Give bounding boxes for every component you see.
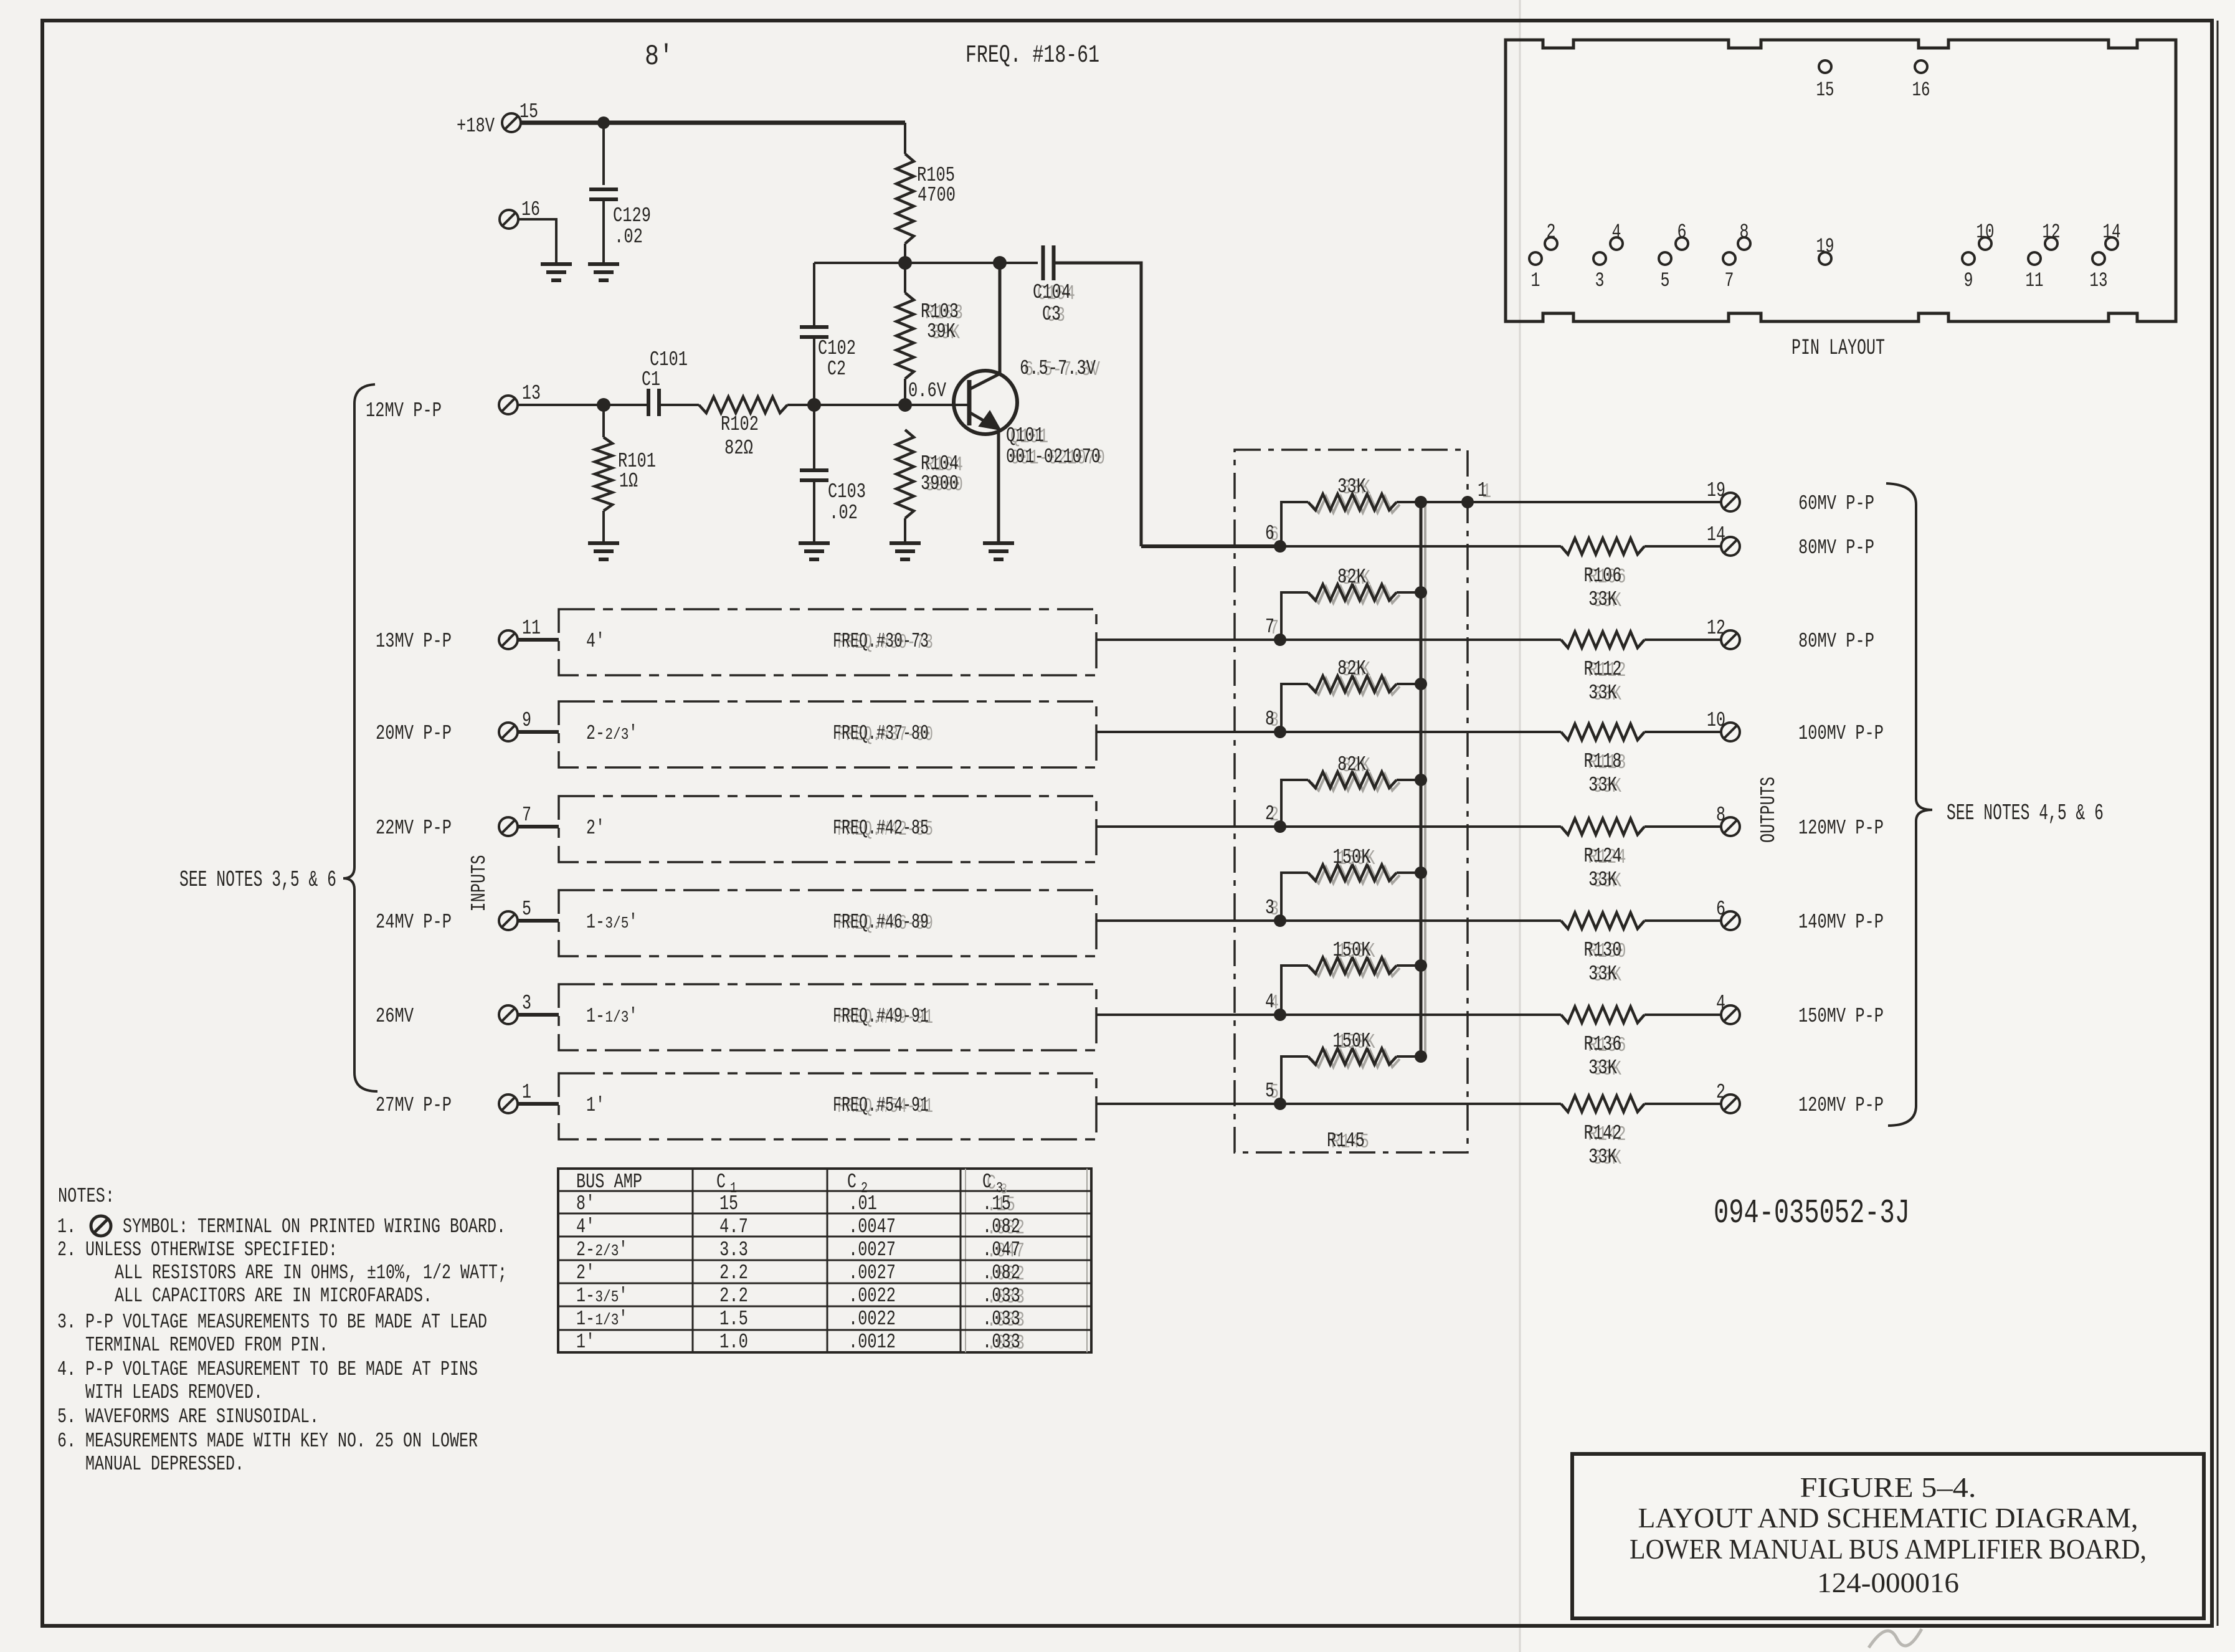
svg-text:PIN LAYOUT: PIN LAYOUT: [1791, 336, 1885, 361]
svg-text:FREQ. #18-61: FREQ. #18-61: [966, 42, 1099, 70]
svg-text:.033: .033: [982, 1331, 1020, 1354]
svg-text:1: 1: [1531, 269, 1540, 292]
svg-text:OUTPUTS: OUTPUTS: [1757, 777, 1780, 843]
svg-text:33K: 33K: [1588, 962, 1617, 985]
svg-text:1-: 1-: [586, 911, 605, 934]
svg-text:11: 11: [522, 617, 541, 640]
svg-text:R102: R102: [721, 413, 759, 436]
svg-text:33K: 33K: [1588, 868, 1617, 891]
svg-text:19: 19: [1707, 479, 1725, 502]
svg-text:4: 4: [1716, 992, 1725, 1015]
svg-text:1: 1: [1478, 479, 1487, 502]
svg-text:16: 16: [1912, 78, 1930, 102]
svg-text:FREQ.#46-89: FREQ.#46-89: [833, 911, 929, 934]
svg-text:24MV P-P: 24MV P-P: [376, 911, 452, 934]
svg-text:.0022: .0022: [848, 1308, 896, 1331]
svg-text:FREQ.#42-85: FREQ.#42-85: [833, 817, 929, 840]
svg-text:WAVEFORMS ARE SINUSOIDAL.: WAVEFORMS ARE SINUSOIDAL.: [85, 1405, 319, 1428]
svg-text:FREQ.#54-91: FREQ.#54-91: [833, 1094, 929, 1117]
svg-text:R112: R112: [1584, 658, 1622, 681]
svg-text:+18V: +18V: [457, 115, 495, 138]
svg-text:5.: 5.: [57, 1405, 76, 1428]
svg-text:1.: 1.: [57, 1215, 76, 1238]
svg-text:FREQ.#37-80: FREQ.#37-80: [833, 722, 929, 745]
svg-text:2.2: 2.2: [719, 1261, 748, 1284]
svg-text:C: C: [982, 1170, 992, 1194]
svg-text:2': 2': [576, 1261, 595, 1284]
svg-text:120MV P-P: 120MV P-P: [1798, 1094, 1884, 1117]
svg-text:14: 14: [1707, 523, 1725, 546]
svg-text:WITH LEADS REMOVED.: WITH LEADS REMOVED.: [85, 1381, 263, 1404]
svg-text:3: 3: [1595, 269, 1605, 292]
svg-text:14: 14: [2103, 221, 2121, 244]
svg-text:1': 1': [576, 1331, 595, 1354]
svg-text:33K: 33K: [1337, 475, 1366, 498]
svg-text:22MV P-P: 22MV P-P: [376, 817, 452, 840]
svg-text:1/3: 1/3: [605, 1008, 629, 1027]
svg-text:.033: .033: [982, 1284, 1020, 1308]
svg-text:3: 3: [522, 992, 531, 1015]
svg-text:13: 13: [2090, 269, 2108, 292]
svg-text:2-: 2-: [576, 1238, 595, 1261]
svg-text:001-021070: 001-021070: [1006, 445, 1101, 468]
svg-text:5: 5: [1661, 269, 1670, 292]
svg-text:39K: 39K: [927, 320, 956, 343]
svg-text:1-: 1-: [576, 1284, 595, 1308]
svg-text:7: 7: [522, 804, 531, 827]
svg-text:7: 7: [1265, 615, 1274, 638]
svg-text:R130: R130: [1584, 939, 1622, 962]
svg-text:2/3: 2/3: [605, 725, 629, 744]
svg-text:6: 6: [1265, 522, 1274, 545]
svg-text:LOWER MANUAL BUS AMPLIFIER BOA: LOWER MANUAL BUS AMPLIFIER BOARD,: [1630, 1533, 2147, 1565]
svg-text:C1: C1: [642, 368, 660, 391]
svg-text:SYMBOL: TERMINAL ON PRINTED WI: SYMBOL: TERMINAL ON PRINTED WIRING BOARD…: [123, 1215, 506, 1238]
svg-text:INPUTS: INPUTS: [468, 855, 491, 912]
svg-text:15: 15: [719, 1192, 738, 1215]
svg-text:4: 4: [1612, 221, 1621, 244]
svg-text:.0012: .0012: [848, 1331, 896, 1354]
svg-text:R106: R106: [1584, 564, 1622, 587]
svg-text:1.5: 1.5: [719, 1308, 748, 1331]
svg-text:4': 4': [576, 1215, 595, 1238]
svg-text:NOTES:: NOTES:: [58, 1185, 115, 1208]
svg-text:9: 9: [1964, 269, 1973, 292]
svg-text:8': 8': [576, 1192, 595, 1215]
svg-text:15: 15: [1816, 78, 1834, 102]
svg-text:2: 2: [1547, 221, 1556, 244]
svg-text:8: 8: [1716, 804, 1725, 827]
svg-text:3.3: 3.3: [719, 1238, 748, 1261]
svg-text:33K: 33K: [1588, 1146, 1617, 1169]
svg-text:R136: R136: [1584, 1033, 1622, 1056]
svg-text:3/5: 3/5: [605, 914, 629, 933]
svg-text:FIGURE 5–4.: FIGURE 5–4.: [1800, 1471, 1976, 1503]
svg-text:82K: 82K: [1337, 753, 1366, 776]
svg-text:2/3: 2/3: [595, 1241, 619, 1260]
svg-text:': ': [629, 911, 638, 934]
svg-text:3: 3: [1265, 896, 1274, 919]
svg-text:11: 11: [2026, 269, 2044, 292]
svg-text:': ': [629, 722, 638, 745]
svg-text:LAYOUT AND SCHEMATIC DIAGRAM,: LAYOUT AND SCHEMATIC DIAGRAM,: [1638, 1502, 2138, 1534]
svg-text:60MV P-P: 60MV P-P: [1798, 492, 1874, 515]
svg-text:Q101: Q101: [1006, 424, 1044, 447]
svg-text:C104: C104: [1033, 281, 1071, 304]
svg-text:9: 9: [522, 709, 531, 732]
svg-text:26MV: 26MV: [376, 1005, 414, 1028]
svg-text:2: 2: [1716, 1081, 1725, 1104]
svg-text:13MV P-P: 13MV P-P: [376, 630, 452, 653]
svg-text:P-P VOLTAGE MEASUREMENTS TO BE: P-P VOLTAGE MEASUREMENTS TO BE MADE AT L…: [85, 1311, 487, 1334]
svg-text:': ': [619, 1238, 628, 1261]
svg-text:6.5-7.3V: 6.5-7.3V: [1020, 357, 1096, 380]
svg-text:2': 2': [586, 817, 605, 840]
svg-text:.047: .047: [982, 1238, 1020, 1261]
svg-text:8: 8: [1265, 708, 1274, 731]
svg-text:27MV P-P: 27MV P-P: [376, 1094, 452, 1117]
svg-text:7: 7: [1725, 269, 1734, 292]
svg-text:33K: 33K: [1588, 774, 1617, 797]
svg-text:82Ω: 82Ω: [724, 437, 753, 460]
svg-text:2: 2: [1265, 802, 1274, 825]
svg-text:FREQ.#49-91: FREQ.#49-91: [833, 1005, 929, 1028]
svg-text:1/3: 1/3: [595, 1311, 619, 1329]
svg-text:.082: .082: [982, 1215, 1020, 1238]
svg-text:8': 8': [645, 40, 673, 73]
svg-text:.0047: .0047: [848, 1215, 896, 1238]
svg-text:C: C: [847, 1170, 857, 1194]
svg-text:150MV P-P: 150MV P-P: [1798, 1005, 1884, 1028]
svg-text:C103: C103: [828, 480, 866, 503]
svg-text:.0027: .0027: [848, 1238, 896, 1261]
svg-text:.15: .15: [982, 1192, 1011, 1215]
svg-text:33K: 33K: [1588, 1056, 1617, 1080]
svg-text:20MV P-P: 20MV P-P: [376, 722, 452, 745]
svg-text:0.6V: 0.6V: [908, 379, 946, 402]
svg-text:R118: R118: [1584, 750, 1622, 773]
svg-text:094-035052-3J: 094-035052-3J: [1714, 1194, 1910, 1233]
svg-text:4.: 4.: [57, 1358, 76, 1381]
svg-text:124-000016: 124-000016: [1817, 1567, 1959, 1598]
svg-text:140MV P-P: 140MV P-P: [1798, 911, 1884, 934]
svg-text:TERMINAL REMOVED FROM PIN.: TERMINAL REMOVED FROM PIN.: [85, 1334, 328, 1357]
svg-text:3/5: 3/5: [595, 1288, 619, 1306]
svg-text:12: 12: [1707, 617, 1725, 640]
svg-text:80MV P-P: 80MV P-P: [1798, 536, 1874, 559]
svg-text:.01: .01: [848, 1192, 877, 1215]
svg-text:BUS AMP: BUS AMP: [576, 1170, 642, 1194]
svg-text:': ': [619, 1308, 628, 1331]
svg-text:3900: 3900: [921, 472, 959, 495]
svg-text:16: 16: [521, 198, 540, 221]
svg-text:.02: .02: [829, 501, 858, 525]
svg-text:2.: 2.: [57, 1238, 76, 1261]
svg-text:4700: 4700: [918, 184, 956, 207]
svg-text:ALL RESISTORS ARE IN OHMS, ±10: ALL RESISTORS ARE IN OHMS, ±10%, 1/2 WAT…: [115, 1261, 507, 1284]
svg-text:82K: 82K: [1337, 566, 1366, 589]
svg-text:4: 4: [1265, 990, 1274, 1014]
svg-text:.0027: .0027: [848, 1261, 896, 1284]
svg-text:82K: 82K: [1337, 657, 1366, 680]
svg-text:': ': [619, 1284, 628, 1308]
svg-text:12MV P-P: 12MV P-P: [366, 399, 442, 422]
svg-text:10: 10: [1976, 221, 1995, 244]
svg-text:MANUAL DEPRESSED.: MANUAL DEPRESSED.: [85, 1453, 244, 1476]
svg-text:100MV P-P: 100MV P-P: [1798, 722, 1884, 745]
svg-text:1-: 1-: [586, 1005, 605, 1028]
svg-text:6: 6: [1716, 898, 1725, 921]
svg-text:R145: R145: [1327, 1129, 1365, 1152]
svg-text:C2: C2: [827, 358, 846, 381]
svg-text:.033: .033: [982, 1308, 1020, 1331]
svg-text:.02: .02: [614, 225, 643, 249]
svg-text:2.2: 2.2: [719, 1284, 748, 1308]
svg-text:': ': [629, 1005, 638, 1028]
svg-text:5: 5: [1265, 1080, 1274, 1103]
svg-text:12: 12: [2043, 221, 2061, 244]
svg-text:FREQ.#30-73: FREQ.#30-73: [833, 630, 929, 653]
svg-text:SEE NOTES 3,5 & 6: SEE NOTES 3,5 & 6: [179, 867, 336, 893]
svg-text:150K: 150K: [1333, 1030, 1371, 1053]
svg-text:MEASUREMENTS MADE WITH KEY NO.: MEASUREMENTS MADE WITH KEY NO. 25 ON LOW…: [85, 1430, 478, 1453]
svg-text:33K: 33K: [1588, 681, 1617, 705]
svg-text:10: 10: [1707, 709, 1725, 732]
svg-text:80MV P-P: 80MV P-P: [1798, 630, 1874, 653]
svg-text:1: 1: [522, 1081, 531, 1104]
svg-text:19: 19: [1816, 235, 1834, 258]
svg-text:6.: 6.: [57, 1430, 76, 1453]
svg-text:3.: 3.: [57, 1311, 76, 1334]
svg-text:8: 8: [1740, 221, 1749, 244]
svg-text:.0022: .0022: [848, 1284, 896, 1308]
svg-text:4': 4': [586, 630, 605, 653]
svg-text:C3: C3: [1042, 303, 1061, 326]
svg-text:150K: 150K: [1333, 846, 1371, 869]
svg-text:ALL CAPACITORS ARE IN MICROFAR: ALL CAPACITORS ARE IN MICROFARADS.: [115, 1284, 432, 1308]
svg-text:6: 6: [1677, 221, 1687, 244]
svg-text:5: 5: [522, 898, 531, 921]
svg-text:C129: C129: [613, 204, 651, 227]
svg-text:1Ω: 1Ω: [619, 470, 638, 493]
svg-text:13: 13: [522, 382, 541, 405]
svg-text:33K: 33K: [1588, 588, 1617, 611]
svg-text:15: 15: [520, 100, 538, 123]
svg-text:C102: C102: [818, 337, 856, 360]
svg-text:C: C: [716, 1170, 726, 1194]
svg-text:.082: .082: [982, 1261, 1020, 1284]
svg-text:2-: 2-: [586, 722, 605, 745]
svg-text:1.0: 1.0: [719, 1331, 748, 1354]
svg-text:UNLESS OTHERWISE SPECIFIED:: UNLESS OTHERWISE SPECIFIED:: [85, 1238, 338, 1261]
svg-text:1': 1': [586, 1094, 605, 1117]
svg-text:4.7: 4.7: [719, 1215, 748, 1238]
svg-text:R124: R124: [1584, 845, 1622, 868]
svg-text:SEE NOTES 4,5 & 6: SEE NOTES 4,5 & 6: [1947, 800, 2104, 826]
svg-text:1-: 1-: [576, 1308, 595, 1331]
svg-text:150K: 150K: [1333, 939, 1371, 962]
svg-text:P-P VOLTAGE MEASUREMENT TO BE: P-P VOLTAGE MEASUREMENT TO BE MADE AT PI…: [85, 1358, 478, 1381]
svg-text:120MV P-P: 120MV P-P: [1798, 817, 1884, 840]
svg-text:R142: R142: [1584, 1122, 1622, 1145]
